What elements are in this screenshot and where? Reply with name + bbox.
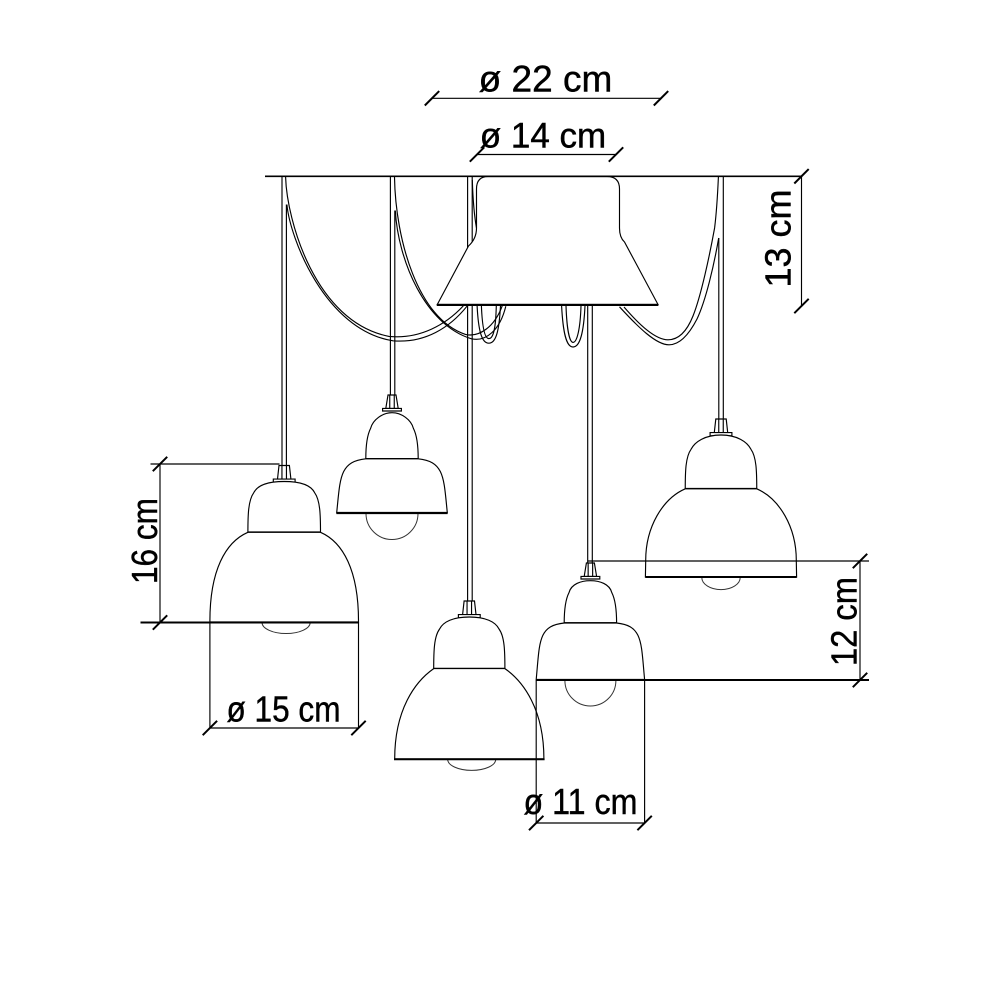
svg-text:ø 14 cm: ø 14 cm (480, 116, 606, 155)
svg-text:ø 15 cm: ø 15 cm (227, 689, 341, 730)
svg-text:12 cm: 12 cm (824, 577, 865, 666)
svg-text:13 cm: 13 cm (758, 189, 799, 287)
svg-text:16 cm: 16 cm (124, 498, 165, 584)
svg-text:ø 11 cm: ø 11 cm (524, 781, 638, 822)
svg-text:ø 22 cm: ø 22 cm (479, 59, 613, 100)
